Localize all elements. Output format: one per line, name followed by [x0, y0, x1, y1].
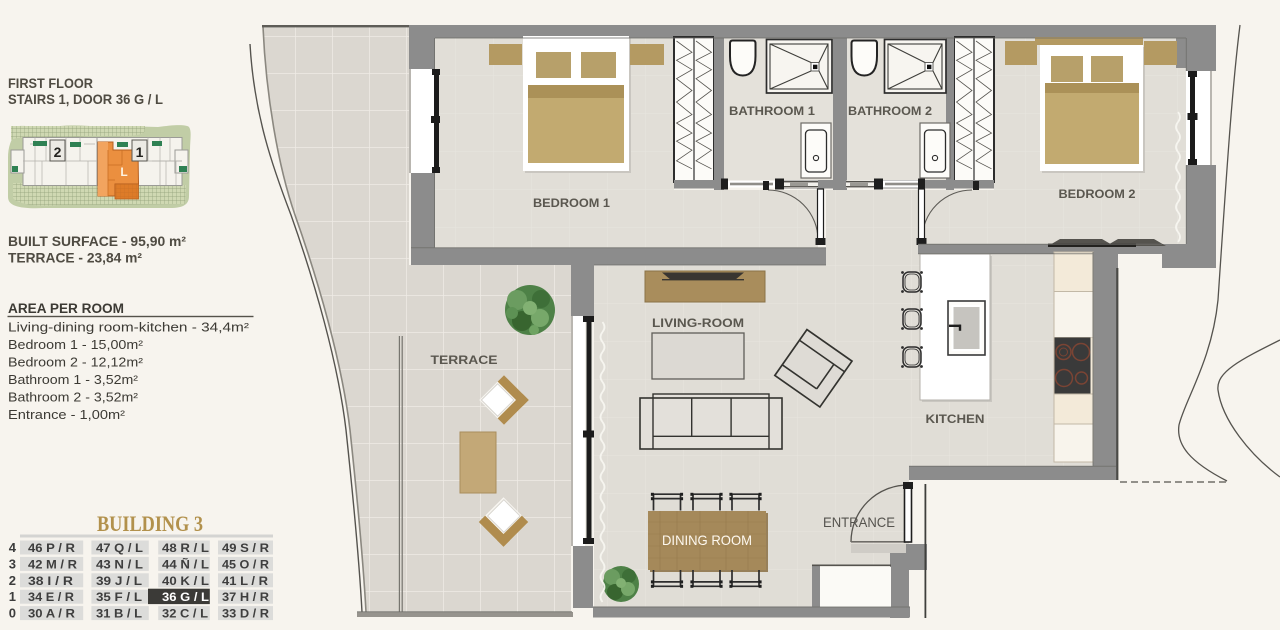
svg-text:DINING ROOM: DINING ROOM — [662, 532, 752, 548]
svg-text:4: 4 — [9, 540, 17, 555]
svg-text:Bathroom 1 - 3,52m²: Bathroom 1 - 3,52m² — [8, 372, 139, 387]
svg-text:KITCHEN: KITCHEN — [926, 412, 985, 426]
svg-text:TERRACE - 23,84 m²: TERRACE - 23,84 m² — [8, 250, 142, 266]
svg-text:32 C / L: 32 C / L — [162, 607, 208, 621]
svg-text:3: 3 — [9, 556, 16, 571]
svg-text:Bedroom 2 - 12,12m²: Bedroom 2 - 12,12m² — [8, 355, 144, 370]
svg-text:39 J / L: 39 J / L — [96, 574, 142, 588]
svg-text:LIVING-ROOM: LIVING-ROOM — [652, 316, 744, 330]
svg-text:BATHROOM 1: BATHROOM 1 — [729, 104, 815, 118]
svg-text:42 M / R: 42 M / R — [28, 557, 77, 571]
svg-text:1: 1 — [9, 589, 16, 604]
svg-text:43 N / L: 43 N / L — [96, 557, 143, 571]
svg-text:38 I / R: 38 I / R — [28, 574, 73, 588]
svg-text:FIRST FLOOR: FIRST FLOOR — [8, 75, 93, 91]
svg-text:35 F / L: 35 F / L — [96, 590, 142, 604]
svg-text:ENTRANCE: ENTRANCE — [823, 514, 895, 530]
svg-text:2: 2 — [54, 144, 62, 160]
svg-text:BEDROOM 2: BEDROOM 2 — [1059, 187, 1136, 201]
svg-text:Living-dining room-kitchen - 3: Living-dining room-kitchen - 34,4m² — [8, 320, 250, 335]
svg-text:L: L — [120, 165, 127, 179]
svg-text:41 L / R: 41 L / R — [222, 574, 268, 588]
svg-text:Bathroom 2 - 3,52m²: Bathroom 2 - 3,52m² — [8, 390, 139, 405]
svg-text:Entrance - 1,00m²: Entrance - 1,00m² — [8, 407, 126, 422]
svg-text:47 Q / L: 47 Q / L — [96, 541, 143, 555]
svg-text:BEDROOM 1: BEDROOM 1 — [533, 196, 610, 210]
svg-text:34 E / R: 34 E / R — [28, 590, 74, 604]
svg-text:AREA PER ROOM: AREA PER ROOM — [8, 301, 124, 316]
svg-text:BUILDING 3: BUILDING 3 — [97, 511, 203, 536]
svg-text:49 S / R: 49 S / R — [222, 541, 269, 555]
svg-text:31 B / L: 31 B / L — [96, 607, 142, 621]
svg-text:0: 0 — [9, 606, 16, 621]
svg-text:STAIRS 1, DOOR 36 G / L: STAIRS 1, DOOR 36 G / L — [8, 91, 163, 107]
svg-text:TERRACE: TERRACE — [431, 353, 498, 367]
svg-text:37 H / R: 37 H / R — [222, 590, 269, 604]
svg-text:BUILT SURFACE - 95,90 m²: BUILT SURFACE - 95,90 m² — [8, 233, 186, 249]
svg-text:BATHROOM 2: BATHROOM 2 — [848, 104, 932, 118]
svg-text:44 Ñ / L: 44 Ñ / L — [162, 556, 209, 571]
svg-text:30 A / R: 30 A / R — [28, 607, 75, 621]
svg-text:48 R / L: 48 R / L — [162, 541, 209, 555]
svg-text:40 K / L: 40 K / L — [162, 574, 209, 588]
svg-text:33 D / R: 33 D / R — [222, 607, 269, 621]
svg-text:2: 2 — [9, 573, 16, 588]
svg-text:1: 1 — [136, 144, 144, 160]
svg-text:45 O / R: 45 O / R — [222, 557, 269, 571]
svg-text:46 P / R: 46 P / R — [28, 541, 75, 555]
svg-text:36 G / L: 36 G / L — [162, 590, 209, 604]
svg-text:Bedroom 1 - 15,00m²: Bedroom 1 - 15,00m² — [8, 337, 144, 352]
